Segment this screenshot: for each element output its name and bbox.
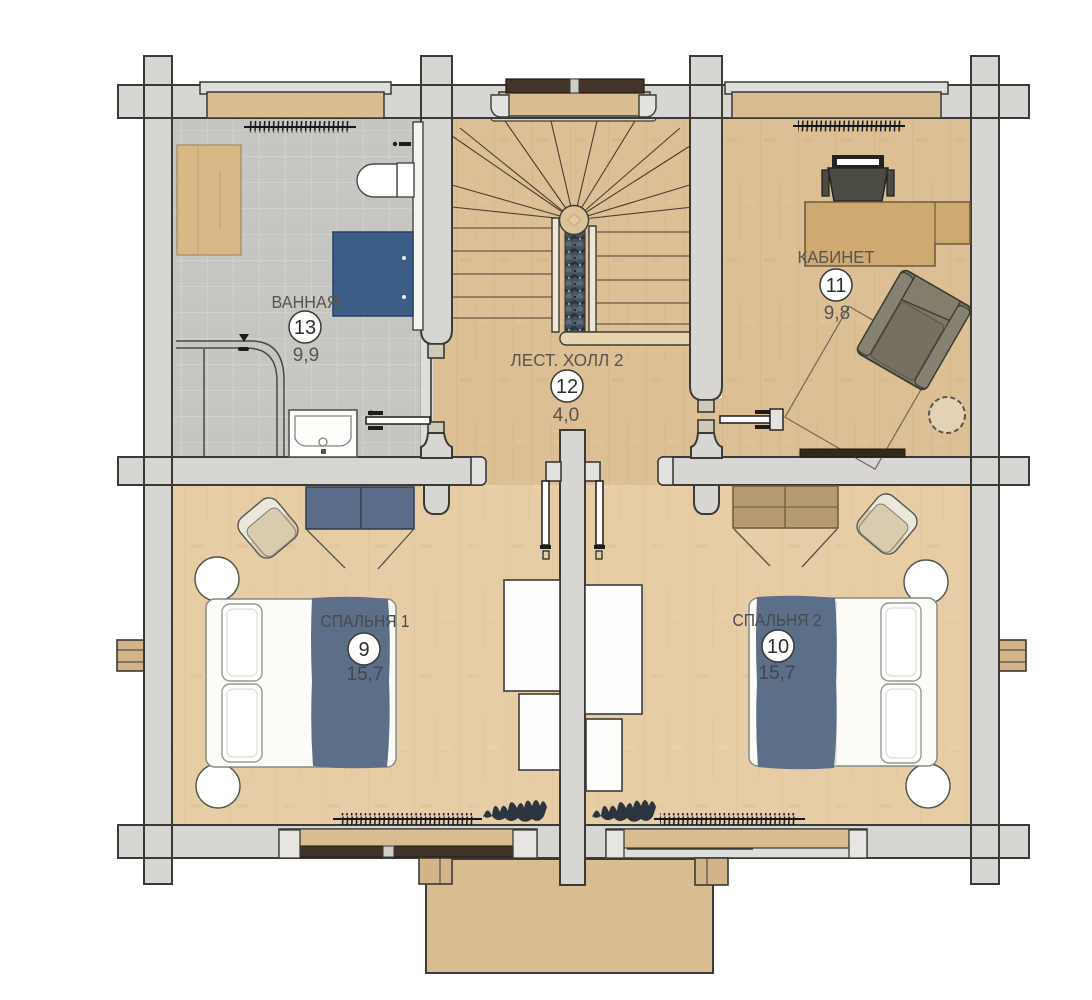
svg-text:11: 11 — [826, 275, 847, 297]
svg-text:СПАЛЬНЯ 2: СПАЛЬНЯ 2 — [733, 610, 822, 630]
svg-text:ВАННАЯ: ВАННАЯ — [272, 292, 339, 312]
svg-text:ЛЕСТ. ХОЛЛ 2: ЛЕСТ. ХОЛЛ 2 — [511, 350, 624, 370]
svg-text:9,8: 9,8 — [824, 303, 850, 324]
svg-text:КАБИНЕТ: КАБИНЕТ — [798, 247, 875, 267]
svg-text:СПАЛЬНЯ 1: СПАЛЬНЯ 1 — [321, 611, 410, 631]
svg-text:9: 9 — [358, 639, 369, 661]
svg-text:9,9: 9,9 — [293, 345, 319, 366]
svg-text:15,7: 15,7 — [759, 663, 796, 684]
svg-text:12: 12 — [556, 376, 578, 398]
svg-text:10: 10 — [767, 636, 789, 658]
svg-text:15,7: 15,7 — [347, 664, 384, 685]
svg-text:13: 13 — [294, 317, 316, 339]
svg-text:4,0: 4,0 — [553, 405, 579, 426]
